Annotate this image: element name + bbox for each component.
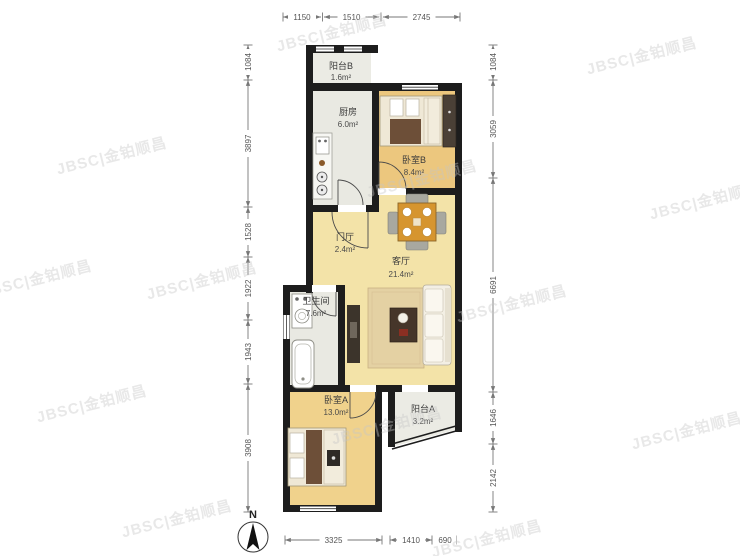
dim-bottom-2: 1410 (402, 536, 420, 545)
balcony-a-name: 阳台A (411, 403, 435, 414)
balcony-b-name: 阳台B (329, 60, 353, 71)
dim-left-1: 1084 (244, 53, 253, 71)
kitchen-area: 6.0m² (338, 120, 359, 129)
bedroom-b-bed (380, 96, 442, 146)
hall-area: 2.4m² (335, 245, 356, 254)
balcony-b-area: 1.6m² (331, 73, 352, 82)
living-name: 客厅 (392, 255, 410, 266)
dim-right-4: 1646 (489, 409, 498, 427)
dim-left-2: 3897 (244, 134, 253, 152)
kitchen-name: 厨房 (339, 106, 357, 117)
dim-right-5: 2142 (489, 469, 498, 487)
sofa (423, 285, 451, 365)
bath-name: 卫生间 (302, 295, 329, 306)
dim-left-6: 3908 (244, 439, 253, 457)
north-arrow: N (238, 509, 268, 552)
living-area: 21.4m² (389, 270, 414, 279)
wall-bath-right (338, 285, 345, 392)
north-label: N (249, 509, 257, 521)
wall-left-upper (306, 45, 313, 293)
bedroom-b-area: 8.4m² (404, 168, 425, 177)
dim-left-3: 1528 (244, 223, 253, 241)
dim-top-2: 1510 (343, 13, 361, 22)
bathtub (292, 340, 314, 388)
dim-top-1: 1150 (293, 13, 311, 22)
bedroom-a-bed (288, 428, 346, 486)
wall-upper-divider (306, 83, 462, 91)
kitchen-counter (313, 133, 332, 199)
bedroom-b-name: 卧室B (402, 154, 426, 165)
bedroom-a-area: 13.0m² (324, 408, 349, 417)
north-needle (247, 523, 260, 550)
wall-bedroom-a-right (375, 385, 382, 512)
bedroom-b-wardrobe (443, 95, 456, 147)
dim-right-1: 1084 (489, 53, 498, 71)
balcony-a-area: 3.2m² (413, 417, 434, 426)
floorplan-page: 阳台B 1.6m² 厨房 6.0m² 卧室B 8.4m² 门厅 2.4m² 客厅… (0, 0, 740, 556)
hall-name: 门厅 (336, 231, 354, 242)
wall-balcony-a-left (388, 385, 395, 447)
bath-area: 7.6m² (306, 309, 327, 318)
dim-bottom-1: 3325 (325, 536, 343, 545)
dim-bottom-3: 690 (438, 536, 452, 545)
dim-right-3: 6691 (489, 276, 498, 294)
floorplan-drawing: 阳台B 1.6m² 厨房 6.0m² 卧室B 8.4m² 门厅 2.4m² 客厅… (0, 0, 740, 556)
tv-cabinet (347, 305, 360, 363)
bedroom-a-name: 卧室A (324, 394, 348, 405)
wall-kitchen-bedroom-divider (372, 83, 379, 212)
dim-right-2: 3059 (489, 120, 498, 138)
dim-top-3: 2745 (413, 13, 431, 22)
dim-left-4: 1922 (244, 279, 253, 297)
dim-left-5: 1943 (244, 343, 253, 361)
coffee-table (390, 308, 417, 342)
